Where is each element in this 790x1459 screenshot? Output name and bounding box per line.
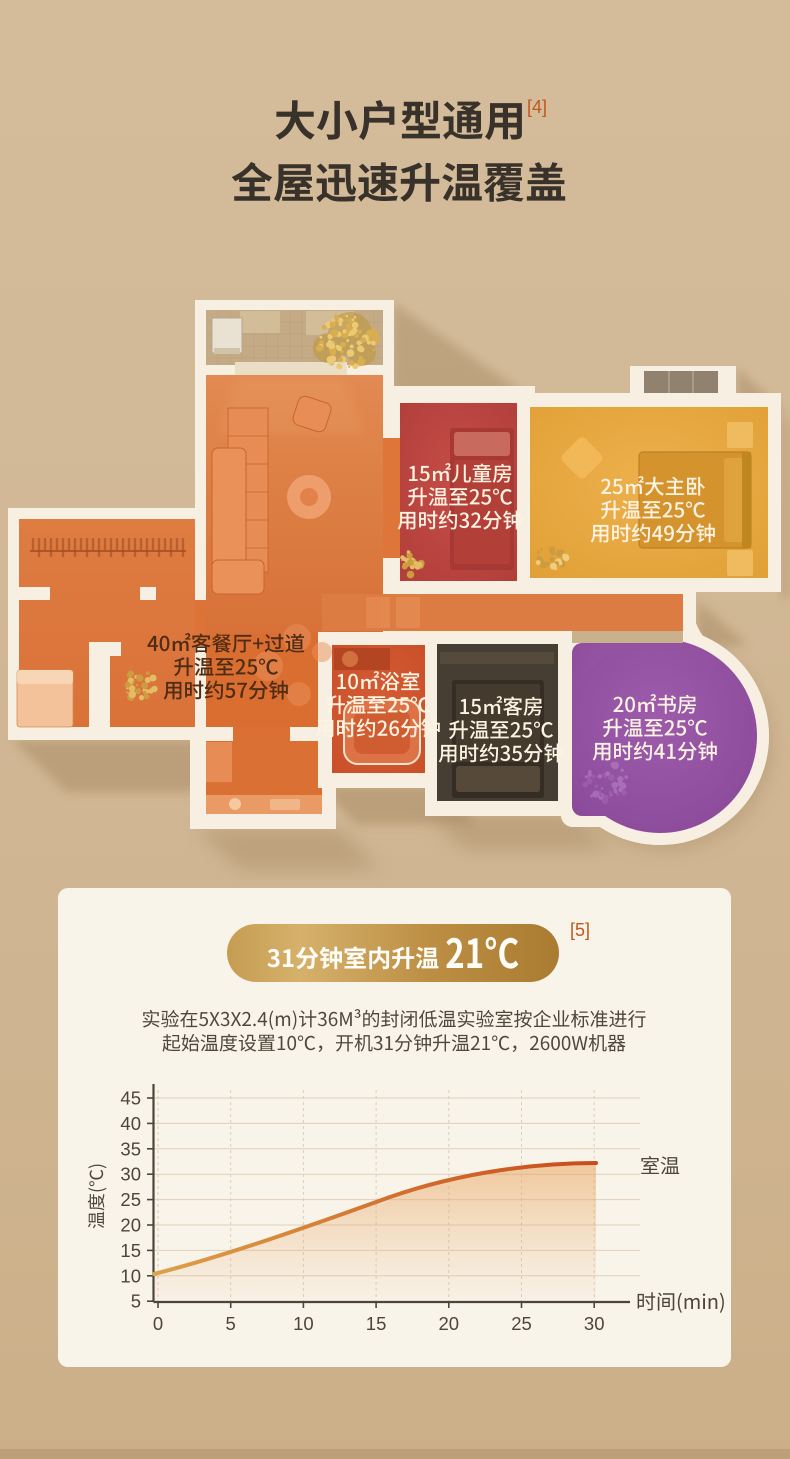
svg-text:20: 20: [120, 1215, 141, 1236]
svg-text:15: 15: [120, 1240, 141, 1261]
svg-text:10: 10: [293, 1313, 314, 1334]
svg-text:45: 45: [120, 1088, 141, 1109]
svg-text:25: 25: [511, 1313, 532, 1334]
svg-text:40: 40: [120, 1113, 141, 1134]
svg-text:30: 30: [120, 1164, 141, 1185]
svg-text:15: 15: [366, 1313, 387, 1334]
svg-text:30: 30: [584, 1313, 605, 1334]
svg-text:25: 25: [120, 1189, 141, 1210]
svg-text:35: 35: [120, 1138, 141, 1159]
svg-text:10: 10: [120, 1265, 141, 1286]
svg-text:20: 20: [439, 1313, 460, 1334]
svg-text:5: 5: [131, 1291, 141, 1312]
svg-text:5: 5: [226, 1313, 236, 1334]
svg-text:[4]: [4]: [527, 97, 547, 117]
svg-text:0: 0: [153, 1313, 163, 1334]
svg-text:[5]: [5]: [570, 920, 590, 940]
